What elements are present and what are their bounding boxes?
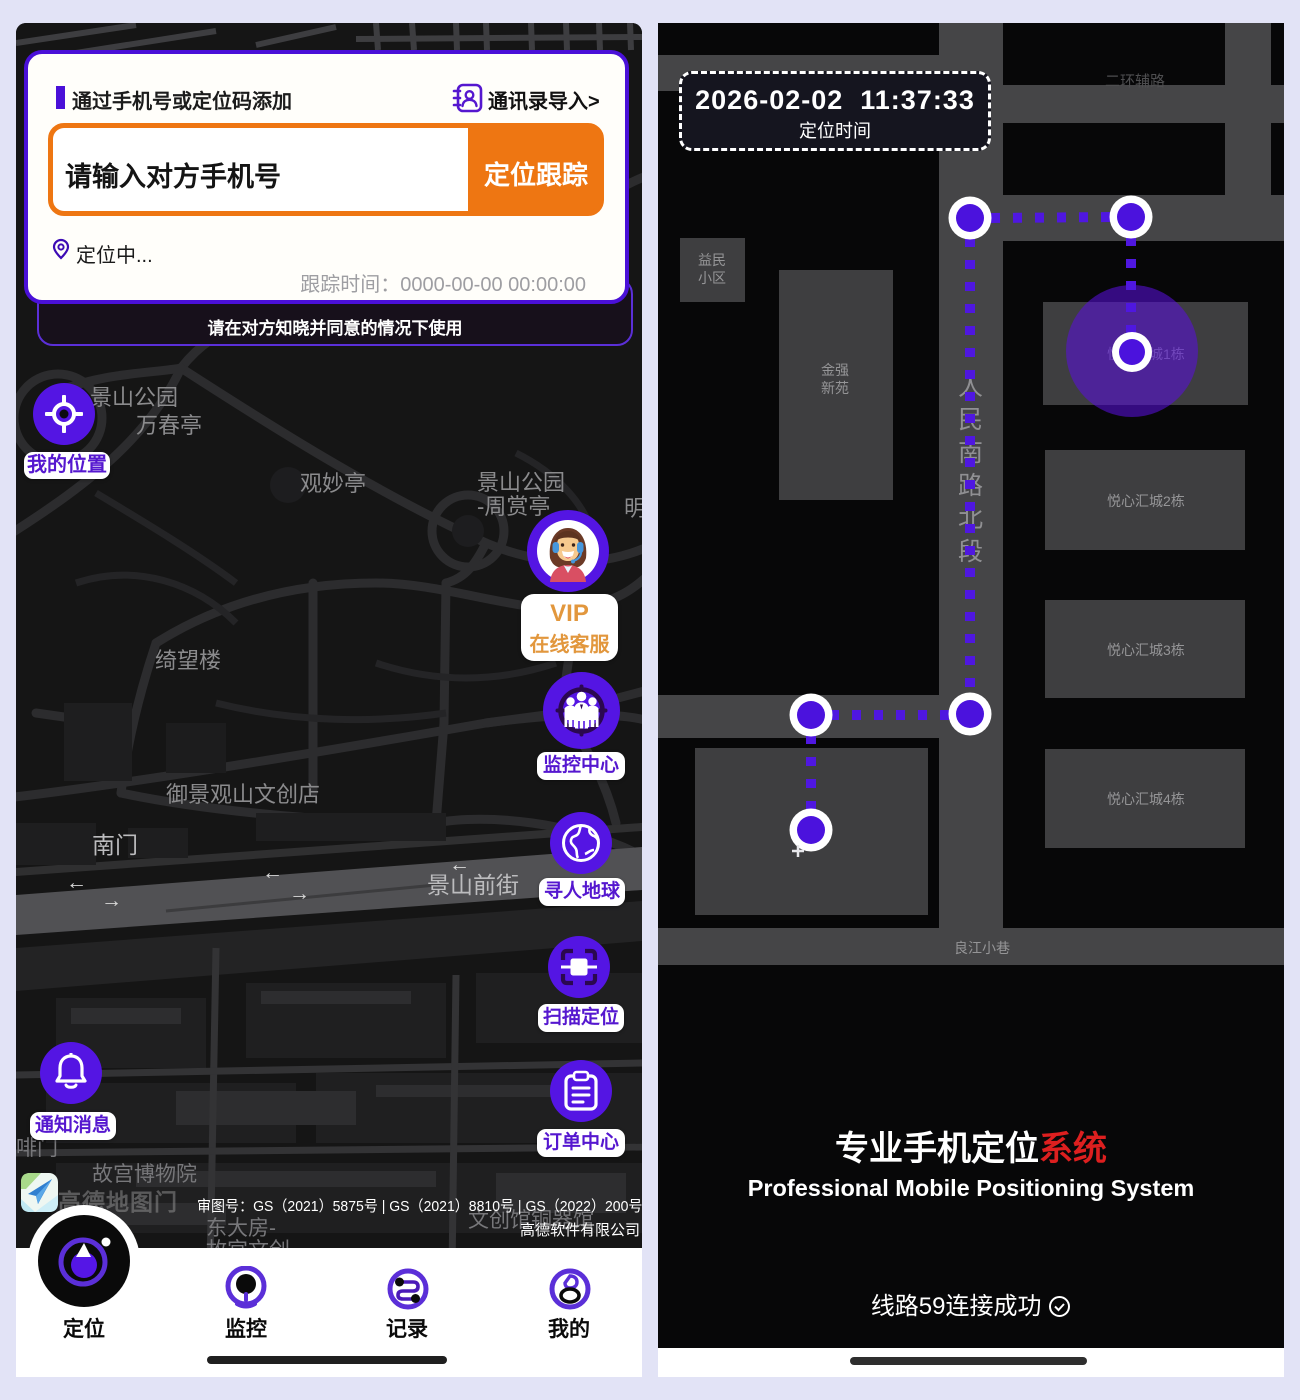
svg-text:悦心汇城2栋: 悦心汇城2栋 <box>1107 493 1185 509</box>
svg-text:悦心汇城3栋: 悦心汇城3栋 <box>1107 642 1185 658</box>
svg-text:-周赏亭: -周赏亭 <box>477 494 550 519</box>
svg-text:二环辅路: 二环辅路 <box>1105 73 1165 90</box>
svg-text:明: 明 <box>624 496 642 521</box>
svg-text:啡门: 啡门 <box>16 1137 58 1160</box>
svg-text:景山公园: 景山公园 <box>90 385 178 410</box>
svg-text:观妙亭: 观妙亭 <box>300 471 366 496</box>
svg-text:悦心汇城4栋: 悦心汇城4栋 <box>1107 791 1185 807</box>
svg-text:万春亭: 万春亭 <box>136 413 202 438</box>
svg-text:←: ← <box>66 871 87 894</box>
svg-text:金强: 金强 <box>821 362 849 378</box>
svg-text:→: → <box>101 889 122 912</box>
svg-text:景山前街: 景山前街 <box>427 872 519 898</box>
svg-text:←: ← <box>262 861 283 884</box>
svg-text:小区: 小区 <box>698 270 726 286</box>
svg-text:御景观山文创店: 御景观山文创店 <box>166 782 320 807</box>
svg-text:东大房-: 东大房- <box>206 1217 276 1240</box>
svg-text:景山公园: 景山公园 <box>477 470 565 495</box>
svg-text:→: → <box>289 882 310 905</box>
svg-text:新苑: 新苑 <box>821 380 849 396</box>
svg-text:绮望楼: 绮望楼 <box>155 648 221 673</box>
svg-text:良江小巷: 良江小巷 <box>954 940 1010 956</box>
svg-text:益民: 益民 <box>698 252 726 268</box>
svg-text:南门: 南门 <box>92 832 138 858</box>
